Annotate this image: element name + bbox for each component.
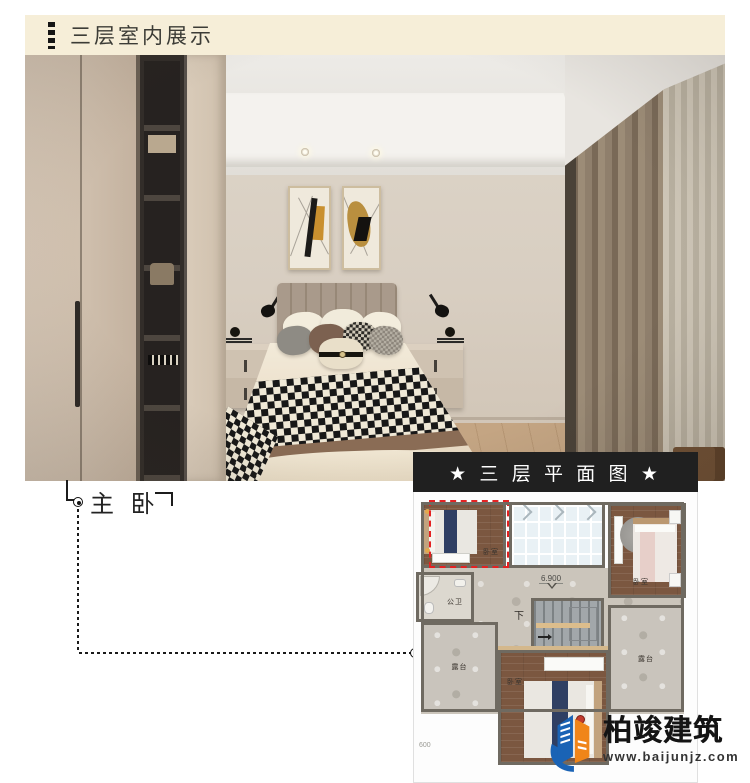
promo-page: 三层室内展示 (0, 0, 750, 783)
elevation-triangle-icon (547, 583, 557, 589)
section-title: 三层室内展示 (70, 20, 214, 50)
logo-building-icon (545, 705, 599, 775)
plan-room-label: 露台 (638, 654, 654, 664)
plan-skylight (509, 502, 605, 568)
shelf-box (148, 135, 176, 153)
spotlight-icon (372, 149, 380, 157)
book-stack (437, 338, 464, 343)
plan-stair-rail (536, 623, 590, 628)
company-logo: 柏竣建筑 www.baijunjz.com (545, 700, 745, 780)
ceiling-cove-panel (195, 93, 587, 167)
highlight-dashed-box (429, 500, 509, 568)
floor-plan-title-bar: ★ 三 层 平 面 图 ★ (413, 452, 698, 492)
plan-room-label: 露台 (452, 662, 468, 672)
section-banner: 三层室内展示 (25, 15, 725, 55)
sliding-door-panel (184, 55, 226, 481)
open-shelf-unit (140, 55, 184, 481)
company-name: 柏竣建筑 (603, 716, 739, 748)
wardrobe (25, 55, 140, 481)
wall-art-left (288, 186, 331, 270)
plan-room-label: 卧室 (633, 577, 649, 587)
dashed-bar-icon (48, 22, 55, 49)
plan-wardrobe (544, 657, 604, 671)
plan-nightstand (669, 510, 681, 524)
company-website: www.baijunjz.com (603, 749, 739, 764)
plan-staircase (531, 598, 604, 650)
stair-direction-arrow-icon (538, 636, 548, 638)
alarm-clock-icon (445, 327, 455, 337)
partial-level-text: 600 (419, 742, 431, 749)
connector-line-horizontal (79, 652, 411, 654)
wall-art-right (342, 186, 381, 270)
plan-terrace-right: 露台 (608, 605, 684, 712)
floor-plan-title: ★ 三 层 平 面 图 ★ (449, 459, 662, 486)
alarm-clock-icon (230, 327, 240, 337)
connector-dot-start (73, 497, 83, 507)
spotlight-icon (301, 148, 309, 156)
shelf-bag (150, 263, 174, 285)
plan-shower (420, 576, 440, 596)
wardrobe-handle (75, 301, 80, 407)
plan-room-label: 卧室 (507, 677, 523, 687)
connector-line-vertical (77, 509, 79, 652)
plan-toilet (424, 602, 434, 614)
sheer-curtain (663, 55, 725, 481)
accent-pillow (319, 338, 363, 369)
stairs-down-label: 下 (514, 607, 524, 622)
wall-lamp-right-icon (427, 291, 449, 321)
plan-sink (454, 579, 466, 587)
plan-nightstand (669, 573, 681, 587)
plan-terrace-left: 露台 (421, 622, 498, 712)
bedroom-photo (25, 55, 725, 481)
plan-room-label: 公卫 (447, 597, 463, 607)
book-stack (225, 338, 252, 343)
plan-bedroom-top-right: 卧室 (608, 503, 686, 598)
plan-bathroom: 公卫 (416, 572, 474, 622)
room-name-label: 主 卧 (90, 484, 160, 519)
shelf-books (148, 355, 178, 365)
label-bracket-right (155, 492, 173, 506)
